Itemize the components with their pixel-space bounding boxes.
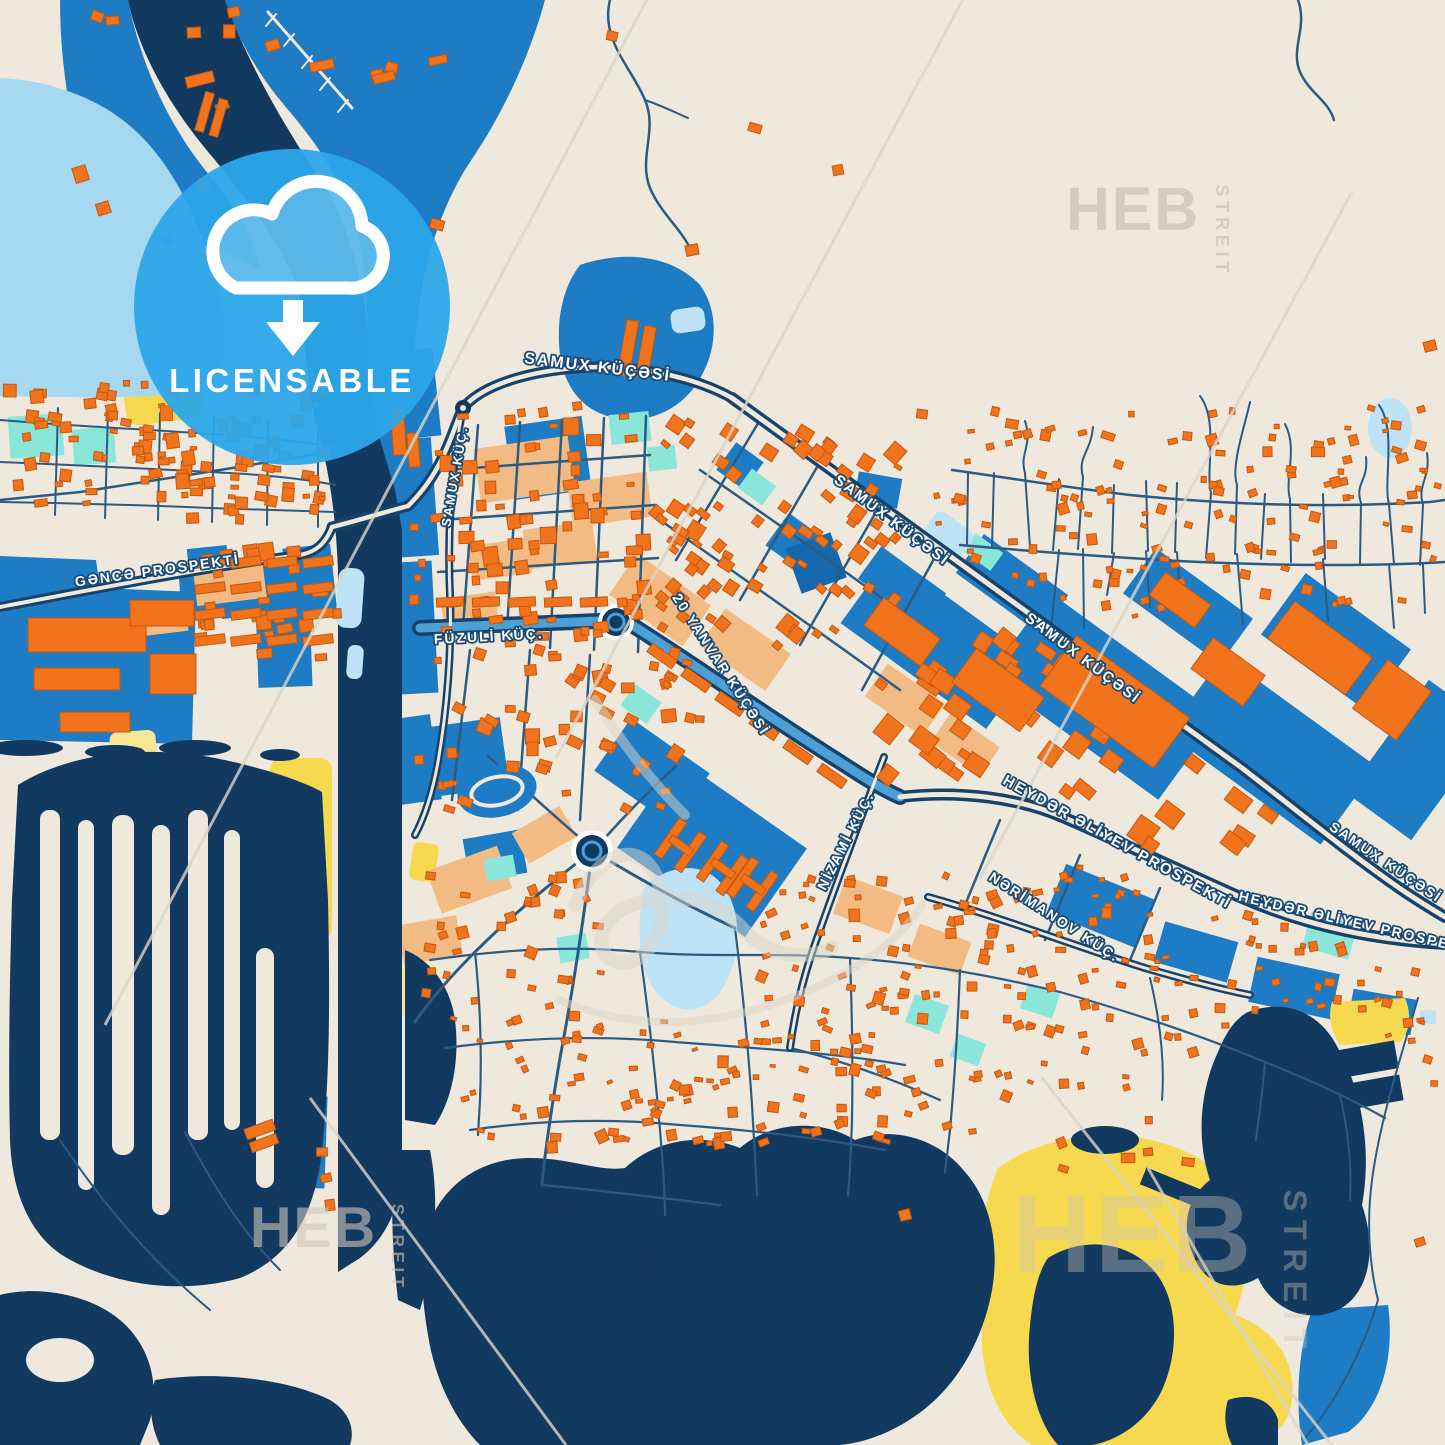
building [1309, 511, 1321, 523]
building [227, 6, 240, 18]
building [472, 609, 481, 618]
building [549, 654, 562, 661]
building [303, 494, 309, 498]
building [86, 489, 97, 495]
building [1411, 968, 1420, 977]
building [549, 1095, 559, 1101]
building [1314, 983, 1322, 991]
building [1123, 1084, 1130, 1091]
building [572, 402, 582, 411]
building [1229, 515, 1237, 523]
building [1183, 432, 1192, 441]
building [987, 928, 996, 938]
building [832, 164, 844, 175]
building [235, 514, 244, 524]
building [419, 559, 426, 567]
building [525, 443, 536, 453]
building [145, 453, 153, 461]
building [319, 496, 325, 500]
building [849, 909, 860, 922]
building [563, 418, 579, 435]
building [1080, 999, 1091, 1010]
building [426, 872, 436, 880]
building [487, 563, 503, 577]
building [505, 415, 515, 425]
building [562, 790, 571, 796]
building [967, 982, 977, 991]
building [934, 992, 939, 997]
building [1155, 960, 1160, 964]
building [1121, 1153, 1135, 1163]
building [597, 970, 604, 975]
building [1434, 483, 1442, 489]
building [320, 1173, 332, 1183]
building [1046, 982, 1056, 992]
lake-bottom-center [422, 1126, 995, 1445]
building [460, 892, 470, 898]
building [879, 987, 886, 992]
building [1213, 486, 1224, 496]
building [201, 461, 212, 472]
building [661, 709, 677, 723]
building [1077, 502, 1085, 510]
building [1430, 555, 1437, 562]
building [1081, 1046, 1089, 1055]
building [545, 1003, 554, 1010]
building [780, 890, 786, 895]
building [1013, 431, 1022, 439]
building [793, 1093, 804, 1102]
building [1115, 893, 1121, 899]
building [1269, 945, 1276, 952]
building [720, 1131, 732, 1141]
building [1252, 919, 1258, 925]
building [606, 30, 618, 41]
building [414, 755, 423, 764]
building [818, 929, 825, 935]
building [959, 900, 969, 910]
building [141, 381, 148, 388]
building [666, 1129, 677, 1141]
building [506, 514, 521, 529]
building [961, 1011, 968, 1019]
building [685, 244, 699, 257]
building [792, 965, 799, 972]
building [558, 975, 570, 984]
building [1206, 553, 1215, 561]
building [55, 481, 63, 487]
building [1004, 984, 1010, 988]
building [760, 921, 766, 928]
building [1132, 1038, 1144, 1050]
building [563, 522, 572, 531]
building [496, 504, 505, 510]
building [990, 406, 999, 416]
building [563, 479, 579, 491]
building [1240, 569, 1251, 579]
building [1338, 469, 1344, 474]
building [1189, 1009, 1198, 1018]
building [1255, 549, 1261, 554]
building [1150, 966, 1158, 971]
building [1267, 518, 1275, 524]
building [547, 1141, 558, 1153]
building [505, 705, 515, 712]
building [627, 482, 634, 486]
building [1121, 958, 1129, 964]
building [849, 1033, 861, 1044]
building [458, 413, 469, 419]
building [1348, 434, 1359, 446]
building [1337, 946, 1347, 956]
building [986, 443, 995, 451]
building [890, 1007, 898, 1014]
building [707, 1079, 714, 1083]
building [1281, 923, 1289, 931]
building [600, 741, 613, 751]
building [635, 1099, 642, 1104]
building [1358, 1006, 1366, 1013]
building [982, 522, 991, 528]
building [1267, 550, 1276, 555]
building [1403, 1018, 1413, 1028]
building [485, 481, 496, 494]
building [223, 25, 235, 38]
building [1162, 955, 1169, 959]
building [1408, 1038, 1415, 1044]
building [447, 748, 457, 759]
building [1301, 584, 1313, 595]
building [529, 540, 539, 549]
building [904, 897, 914, 906]
building [1154, 977, 1160, 983]
building [176, 473, 190, 489]
building [258, 597, 270, 604]
building [844, 879, 856, 888]
building [83, 500, 91, 505]
building [946, 928, 957, 938]
building [437, 922, 444, 930]
building [1145, 953, 1155, 960]
building [869, 1032, 875, 1037]
building [1008, 539, 1017, 545]
building [621, 683, 634, 693]
building [1070, 494, 1078, 502]
building [954, 493, 966, 504]
building [489, 615, 503, 624]
building [649, 661, 658, 671]
building [496, 582, 508, 594]
building [507, 969, 516, 977]
building [463, 1025, 469, 1031]
map-poster: HEBSTREITHEBSTREITHEBSTREIT SAMUX KÜÇƏSİ… [0, 0, 1445, 1445]
building [190, 479, 203, 487]
building [515, 560, 529, 575]
licensable-badge[interactable]: LICENSABLE [134, 149, 450, 465]
building [1342, 455, 1352, 464]
building [30, 390, 44, 404]
building [512, 1104, 520, 1112]
building [255, 491, 269, 502]
building [572, 1035, 582, 1042]
building [1089, 917, 1098, 927]
building [1106, 487, 1112, 493]
building [629, 1089, 639, 1099]
city-map-canvas: HEBSTREITHEBSTREITHEBSTREIT SAMUX KÜÇƏSİ… [0, 0, 1445, 1445]
building [476, 500, 486, 511]
building [309, 475, 319, 485]
building [410, 595, 419, 605]
building [235, 464, 247, 472]
building [642, 1118, 654, 1127]
building [898, 1209, 911, 1222]
building [1327, 437, 1335, 445]
building [1345, 426, 1351, 430]
building [1215, 1003, 1225, 1012]
building [1201, 476, 1206, 482]
building [282, 488, 295, 502]
building [410, 524, 419, 531]
building [831, 1049, 838, 1054]
rural-road [967, 472, 968, 546]
building [537, 1106, 549, 1118]
building [459, 517, 472, 525]
building [258, 474, 271, 485]
building [571, 465, 580, 475]
building [190, 446, 196, 450]
watermark-main: HEB [1066, 175, 1200, 243]
building [141, 476, 149, 484]
building [569, 1011, 579, 1021]
building [915, 965, 921, 969]
building [1300, 943, 1306, 948]
building [855, 895, 861, 900]
building [586, 435, 601, 446]
building [93, 451, 103, 461]
building [802, 1129, 810, 1134]
building [1123, 1075, 1129, 1079]
building [434, 657, 441, 663]
building [934, 903, 943, 909]
building [275, 466, 281, 472]
building [186, 513, 198, 524]
building [911, 1087, 921, 1097]
building [1407, 491, 1417, 500]
building [1358, 980, 1365, 986]
building [804, 882, 809, 887]
building [626, 546, 642, 555]
building [554, 910, 564, 919]
building [24, 457, 37, 471]
building [598, 552, 609, 558]
building [472, 576, 480, 585]
building [231, 485, 239, 489]
building [1018, 993, 1026, 1000]
building [1129, 411, 1135, 417]
building [69, 436, 78, 442]
building [1061, 495, 1068, 502]
building [1415, 486, 1421, 492]
building [720, 1078, 730, 1085]
building [980, 949, 988, 956]
building [1026, 1025, 1034, 1030]
building [1041, 1061, 1047, 1066]
building [1087, 534, 1098, 546]
building [591, 508, 604, 523]
building [640, 1030, 646, 1036]
building [443, 971, 450, 979]
building [1286, 465, 1296, 473]
building [524, 665, 536, 676]
building [121, 418, 132, 427]
building [837, 1104, 846, 1112]
building [1396, 991, 1402, 996]
building [520, 1114, 526, 1120]
building [593, 493, 602, 501]
building [1382, 418, 1389, 424]
building [1431, 1080, 1438, 1086]
building [228, 495, 235, 499]
building [1383, 429, 1389, 433]
building [1175, 981, 1182, 986]
building [85, 480, 92, 487]
building [1308, 941, 1318, 951]
building [608, 1128, 618, 1136]
building [1311, 447, 1324, 457]
building [1056, 947, 1066, 952]
building [1101, 907, 1111, 918]
building [761, 1039, 770, 1045]
building [624, 557, 635, 568]
building [84, 398, 96, 409]
building [732, 1071, 740, 1078]
building [132, 446, 144, 455]
building [1256, 943, 1262, 948]
building [846, 984, 855, 991]
building [235, 497, 248, 509]
building [625, 434, 638, 442]
building [1330, 476, 1342, 488]
building [468, 563, 479, 573]
building [1141, 1049, 1148, 1056]
building [1252, 1006, 1258, 1013]
building [550, 424, 558, 428]
building [1156, 504, 1167, 515]
watermark-main: HEB [250, 1196, 377, 1260]
building [1120, 873, 1128, 881]
building [1059, 871, 1068, 880]
building [1243, 910, 1254, 921]
building [421, 988, 431, 998]
building [13, 480, 23, 491]
building [770, 1064, 775, 1067]
building [694, 1077, 702, 1082]
building [316, 1148, 327, 1156]
building [617, 598, 627, 607]
building [788, 1034, 794, 1039]
building [310, 504, 319, 514]
building [1223, 565, 1230, 573]
building [424, 943, 436, 953]
building [972, 896, 979, 904]
building [1423, 340, 1437, 353]
building [1208, 410, 1217, 418]
building [1396, 499, 1404, 505]
building [182, 492, 188, 498]
building [855, 1049, 861, 1054]
building [1059, 1079, 1069, 1089]
building [547, 617, 556, 623]
building [935, 1059, 943, 1067]
building [1105, 904, 1112, 907]
building [580, 597, 607, 607]
building [682, 659, 692, 666]
building [1398, 597, 1406, 603]
building [531, 897, 540, 907]
building [754, 1038, 762, 1044]
building [631, 511, 641, 520]
building [1140, 597, 1149, 605]
building [1332, 601, 1338, 607]
building [1283, 999, 1289, 1003]
building [470, 540, 485, 552]
building [1164, 1032, 1173, 1041]
building [34, 499, 48, 508]
building [60, 422, 72, 433]
building [471, 997, 479, 1004]
building [1249, 936, 1256, 943]
building [1144, 935, 1153, 945]
building [936, 521, 942, 525]
watermark-side: STREIT [1212, 184, 1232, 277]
building [1077, 1082, 1084, 1089]
building [685, 713, 696, 724]
building [1092, 1004, 1099, 1011]
building [158, 458, 169, 465]
building [1420, 468, 1425, 471]
building [904, 1111, 912, 1118]
building [1056, 526, 1065, 532]
building [143, 425, 154, 433]
building [1375, 966, 1382, 971]
building [1077, 865, 1083, 870]
building [447, 555, 455, 560]
building [568, 451, 581, 462]
building [581, 627, 589, 635]
building [1324, 978, 1335, 987]
building [1070, 533, 1078, 539]
building [1106, 566, 1113, 573]
building [965, 459, 971, 464]
building [969, 1076, 975, 1081]
building [538, 407, 548, 417]
building [136, 456, 145, 464]
building [1092, 968, 1098, 972]
building [1260, 588, 1271, 599]
building [548, 875, 557, 883]
building [59, 469, 71, 482]
building [811, 1040, 820, 1050]
building [506, 761, 519, 772]
building [934, 493, 940, 499]
building [1039, 573, 1046, 582]
building [1005, 419, 1018, 430]
building [546, 580, 558, 591]
building [1174, 1034, 1181, 1041]
building [647, 1042, 654, 1048]
building [1256, 966, 1263, 971]
building [497, 922, 506, 931]
